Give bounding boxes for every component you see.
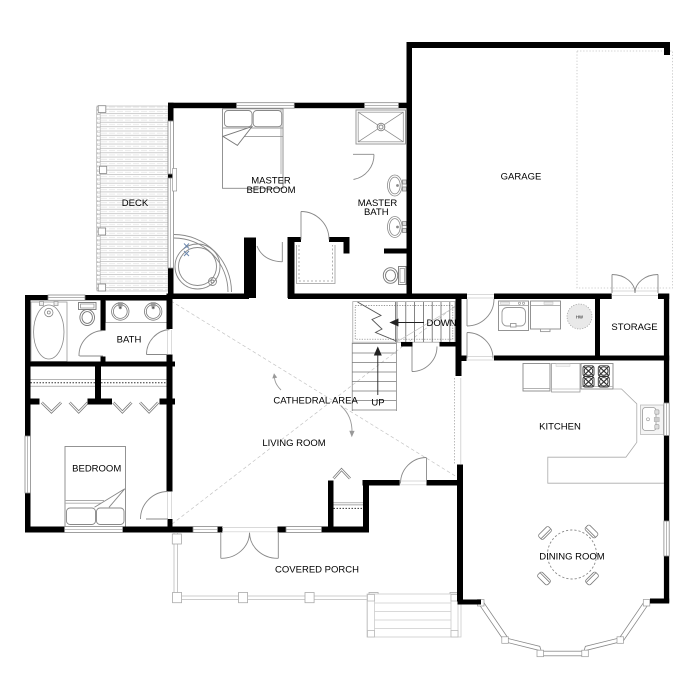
svg-text:KITCHEN: KITCHEN — [539, 421, 581, 432]
svg-text:CATHEDRAL AREA: CATHEDRAL AREA — [273, 396, 358, 407]
svg-text:HW: HW — [576, 315, 583, 320]
svg-text:BEDROOM: BEDROOM — [72, 463, 121, 474]
svg-text:DINING ROOM: DINING ROOM — [539, 552, 605, 563]
svg-text:UP: UP — [371, 398, 384, 409]
svg-text:BATH: BATH — [117, 335, 142, 346]
svg-text:GARAGE: GARAGE — [501, 172, 542, 183]
svg-text:DOWN: DOWN — [426, 318, 456, 329]
svg-text:STORAGE: STORAGE — [611, 322, 657, 333]
svg-text:COVERED PORCH: COVERED PORCH — [275, 565, 359, 576]
svg-text:BATH: BATH — [364, 207, 389, 218]
svg-text:BEDROOM: BEDROOM — [246, 185, 295, 196]
svg-text:LIVING ROOM: LIVING ROOM — [262, 438, 325, 449]
svg-text:DECK: DECK — [122, 198, 149, 209]
